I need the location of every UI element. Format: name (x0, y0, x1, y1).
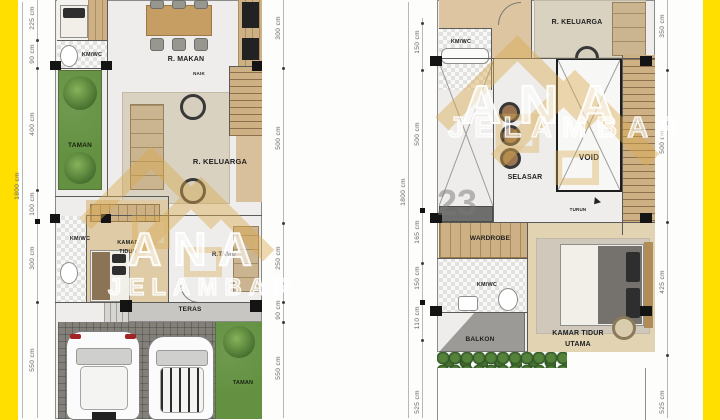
dim-line (283, 0, 284, 418)
floor1-dining-chair (172, 0, 186, 9)
dim-label: 525 cm (659, 390, 666, 414)
floor1-tree-icon (223, 326, 255, 358)
floor2-kmwc-bottom-label: KM/WC (462, 282, 512, 288)
dim-label: 300 cm (275, 16, 282, 40)
floor1-dining-chair (194, 38, 208, 51)
wall (437, 312, 527, 313)
floor1-car2-window (156, 350, 208, 366)
floor1-dining-table (146, 5, 212, 36)
floor2-master-label-line2: UTAMA (530, 341, 626, 349)
floor1-dining-chair (172, 38, 186, 51)
boundary-line (437, 368, 438, 420)
dim-label: 300 cm (29, 246, 36, 270)
dim-line (408, 2, 409, 418)
floor1-kmwc-top-toilet (60, 45, 78, 67)
floor2-sink (458, 296, 478, 311)
floor1-tree-icon (63, 76, 97, 110)
dim-label: 150 cm (414, 30, 421, 54)
dim-tick (421, 339, 424, 342)
floor1-car2-roof (160, 367, 204, 413)
dim-tick (35, 219, 40, 224)
floor2-hedge (437, 352, 567, 368)
dim-label: 225 cm (29, 6, 36, 30)
watermark-brand-top: ANA (128, 222, 264, 276)
floor1-maid-bed-pillow (63, 8, 85, 18)
dim-tick (36, 189, 39, 192)
dim-label: 550 cm (275, 356, 282, 380)
floor1-dining-label: R. MAKAN (150, 56, 222, 64)
wall (229, 66, 230, 136)
column (640, 306, 652, 316)
yellow-border-left (0, 0, 18, 420)
wall (57, 40, 107, 41)
dim-label: 90 cm (29, 44, 36, 64)
column (101, 61, 112, 70)
dim-label: 90 cm (275, 300, 282, 320)
floor1-car-taillight (70, 334, 81, 339)
dim-label: 110 cm (414, 306, 421, 329)
dim-line (22, 2, 23, 418)
floor2-master-pillow (626, 252, 640, 282)
dim-tick (666, 354, 669, 357)
floor1-stove-icon (242, 2, 259, 28)
floor1-stairs (230, 66, 262, 136)
floor1-garden-bottom-label: TAMAN (226, 380, 260, 386)
dim-label: 350 cm (659, 14, 666, 38)
floor2-stairs-down-label: TURUN (560, 208, 596, 213)
dim-tick (666, 221, 669, 224)
dim-tick (36, 301, 39, 304)
watermark-number: 23 (437, 182, 477, 224)
floor1-pouf (180, 94, 206, 120)
dim-tick (282, 222, 285, 225)
dim-label: 1800 cm (400, 178, 407, 206)
dim-label: 100 cm (29, 192, 36, 216)
dim-label: 525 cm (414, 390, 421, 414)
dim-tick (282, 67, 285, 70)
dim-label: 500 cm (414, 122, 421, 146)
wall (437, 258, 527, 259)
dim-tick (420, 208, 425, 213)
floor2-master-label-line1: KAMAR TIDUR (530, 330, 626, 338)
watermark-brand-bottom: JELAMBAR (108, 274, 297, 302)
dim-label: 165 cm (414, 220, 421, 244)
column (50, 214, 60, 223)
dim-tick (36, 39, 39, 42)
dim-label: 150 cm (414, 266, 421, 290)
floor1-kmwc-top-label: KM/WC (78, 52, 106, 58)
floor1-dining-chair (150, 38, 164, 51)
column (430, 306, 442, 316)
wall (527, 222, 528, 352)
floor1-dining-chair (150, 0, 164, 9)
dim-tick (421, 262, 424, 265)
floor1-terrace-label: TERAS (160, 306, 220, 313)
floor1-sink-icon (242, 38, 259, 60)
boundary-line (645, 368, 646, 420)
dim-line (37, 0, 38, 418)
wall (55, 302, 262, 303)
floor2-balcony-label: BALKON (448, 336, 512, 343)
dim-label: 550 cm (29, 348, 36, 372)
floor1-car-taillight (125, 334, 136, 339)
dim-tick (421, 22, 424, 25)
column (252, 61, 262, 71)
floor2-master-pillow (626, 288, 640, 318)
dim-label: 425 cm (659, 270, 666, 294)
dim-label: 400 cm (29, 112, 36, 136)
watermark-brand-bottom: JELAMBAR (448, 112, 689, 145)
floor1-stairs-up-label: NAIK (186, 72, 212, 77)
column (640, 213, 652, 223)
wall (57, 68, 107, 69)
column (50, 61, 61, 70)
yellow-border-right (703, 0, 720, 420)
floorplan-canvas: KM/WC TAMAN R. MAKAN NAIK R. KELUARGA KA… (0, 0, 720, 420)
dim-tick (282, 321, 285, 324)
floor1-dining-chair (194, 0, 208, 9)
floor2-wardrobe-label: WARDROBE (448, 235, 532, 242)
dim-tick (36, 67, 39, 70)
floor1-car-roof (80, 366, 128, 410)
dim-line (422, 18, 423, 418)
dim-label: 1800 cm (14, 172, 21, 200)
floor1-car-grille (92, 412, 116, 420)
floor2-toilet (498, 288, 518, 311)
floor1-maid-room-wood-floor (88, 0, 107, 40)
floor1-car-window (76, 348, 132, 365)
dim-tick (666, 69, 669, 72)
dim-tick (420, 300, 425, 305)
dim-tick (421, 69, 424, 72)
